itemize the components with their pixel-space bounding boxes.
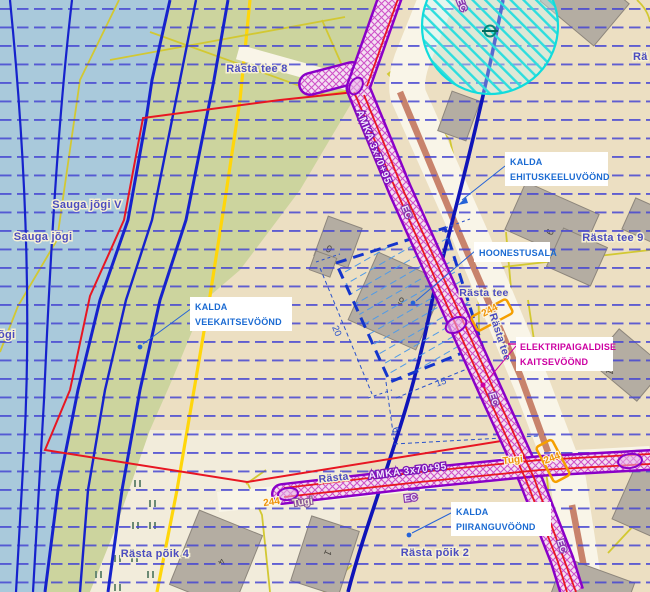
river-label-partial: õgi <box>0 329 15 341</box>
callout-veekaitsevoond-line1: KALDA <box>195 302 228 312</box>
map-canvas[interactable]: 9 6 6 4 1 1 <box>0 0 650 592</box>
callout-dot <box>411 301 416 306</box>
callout-elektripaigaldise-line1: ELEKTRIPAIGALDISE <box>520 342 616 352</box>
cable-label-ec: EC <box>403 492 418 505</box>
callout-dot <box>480 382 485 387</box>
callout-piiranguvoond-line1: KALDA <box>456 507 489 517</box>
river-label-sauga-jogi-v: Sauga jõgi V <box>52 199 122 211</box>
support-label-tugi: Tugi <box>502 454 524 467</box>
corridor-stub <box>310 73 352 84</box>
street-label-rasta-tee: Rästa tee <box>459 287 508 299</box>
callout-veekaitsevoond-line2: VEEKAITSEVÖÖND <box>195 317 282 327</box>
callout-dot <box>407 533 412 538</box>
street-label-partial-ra: Rä <box>633 51 648 63</box>
callout-dot <box>138 345 143 350</box>
callout-hoonestusala: HOONESTUSALA <box>479 248 557 258</box>
street-label-rasta-tee-8: Rästa tee 8 <box>226 63 287 75</box>
callout-ehituskeeluvoond-line2: EHITUSKEELUVÖÖND <box>510 172 610 182</box>
street-label-rasta-poik-4: Rästa põik 4 <box>121 548 190 560</box>
callout-elektripaigaldise-line2: KAITSEVÖÖND <box>520 357 589 367</box>
street-label-rasta-poik-2: Rästa põik 2 <box>401 547 469 559</box>
callout-ehituskeeluvoond-line1: KALDA <box>510 157 543 167</box>
river-label-sauga-jogi: Sauga jõgi <box>14 231 73 243</box>
street-label-rasta-tee-9: Rästa tee 9 <box>582 232 643 244</box>
callout-piiranguvoond-line2: PIIRANGUVÖÖND <box>456 522 536 532</box>
